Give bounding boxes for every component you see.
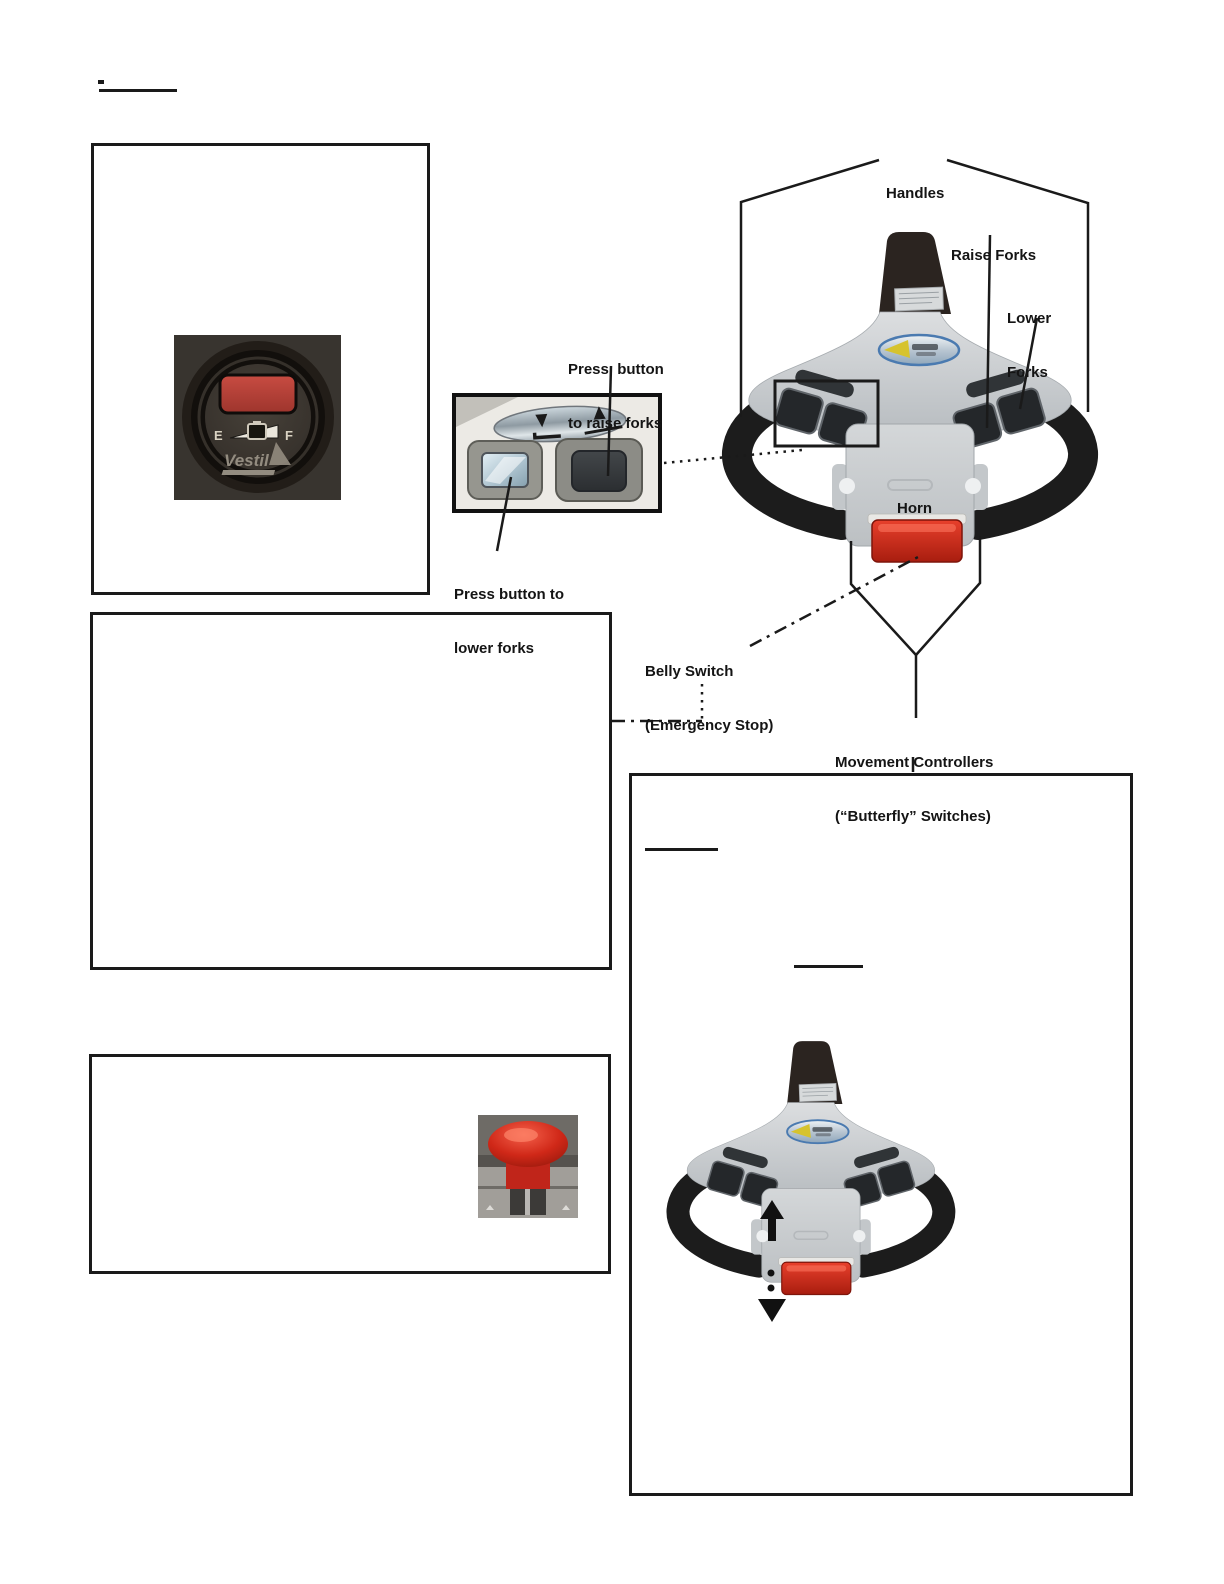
control-head-photo-lower — [678, 1041, 944, 1294]
dotted-axis-dot — [768, 1285, 775, 1292]
press-lower-callout-line — [497, 477, 511, 551]
press-raise-label: Press button to raise forks — [568, 325, 664, 469]
belly-switch-dashdot-line — [750, 557, 918, 646]
press-lower-label: Press button to lower forks — [454, 550, 564, 694]
down-arrow-icon — [758, 1299, 786, 1322]
movement-controllers-label: Movement Controllers (“Butterfly” Switch… — [835, 718, 993, 862]
dotted-axis-dot — [768, 1270, 775, 1277]
manual-page: E F Vestil — [0, 0, 1224, 1584]
handles-label: Handles — [886, 149, 944, 239]
horn-label: Horn — [897, 464, 932, 554]
belly-switch-label: Belly Switch (Emergency Stop) — [645, 627, 773, 771]
lower-forks-label: Lower Forks — [1007, 274, 1051, 418]
diagram-overlay — [0, 0, 1224, 1584]
